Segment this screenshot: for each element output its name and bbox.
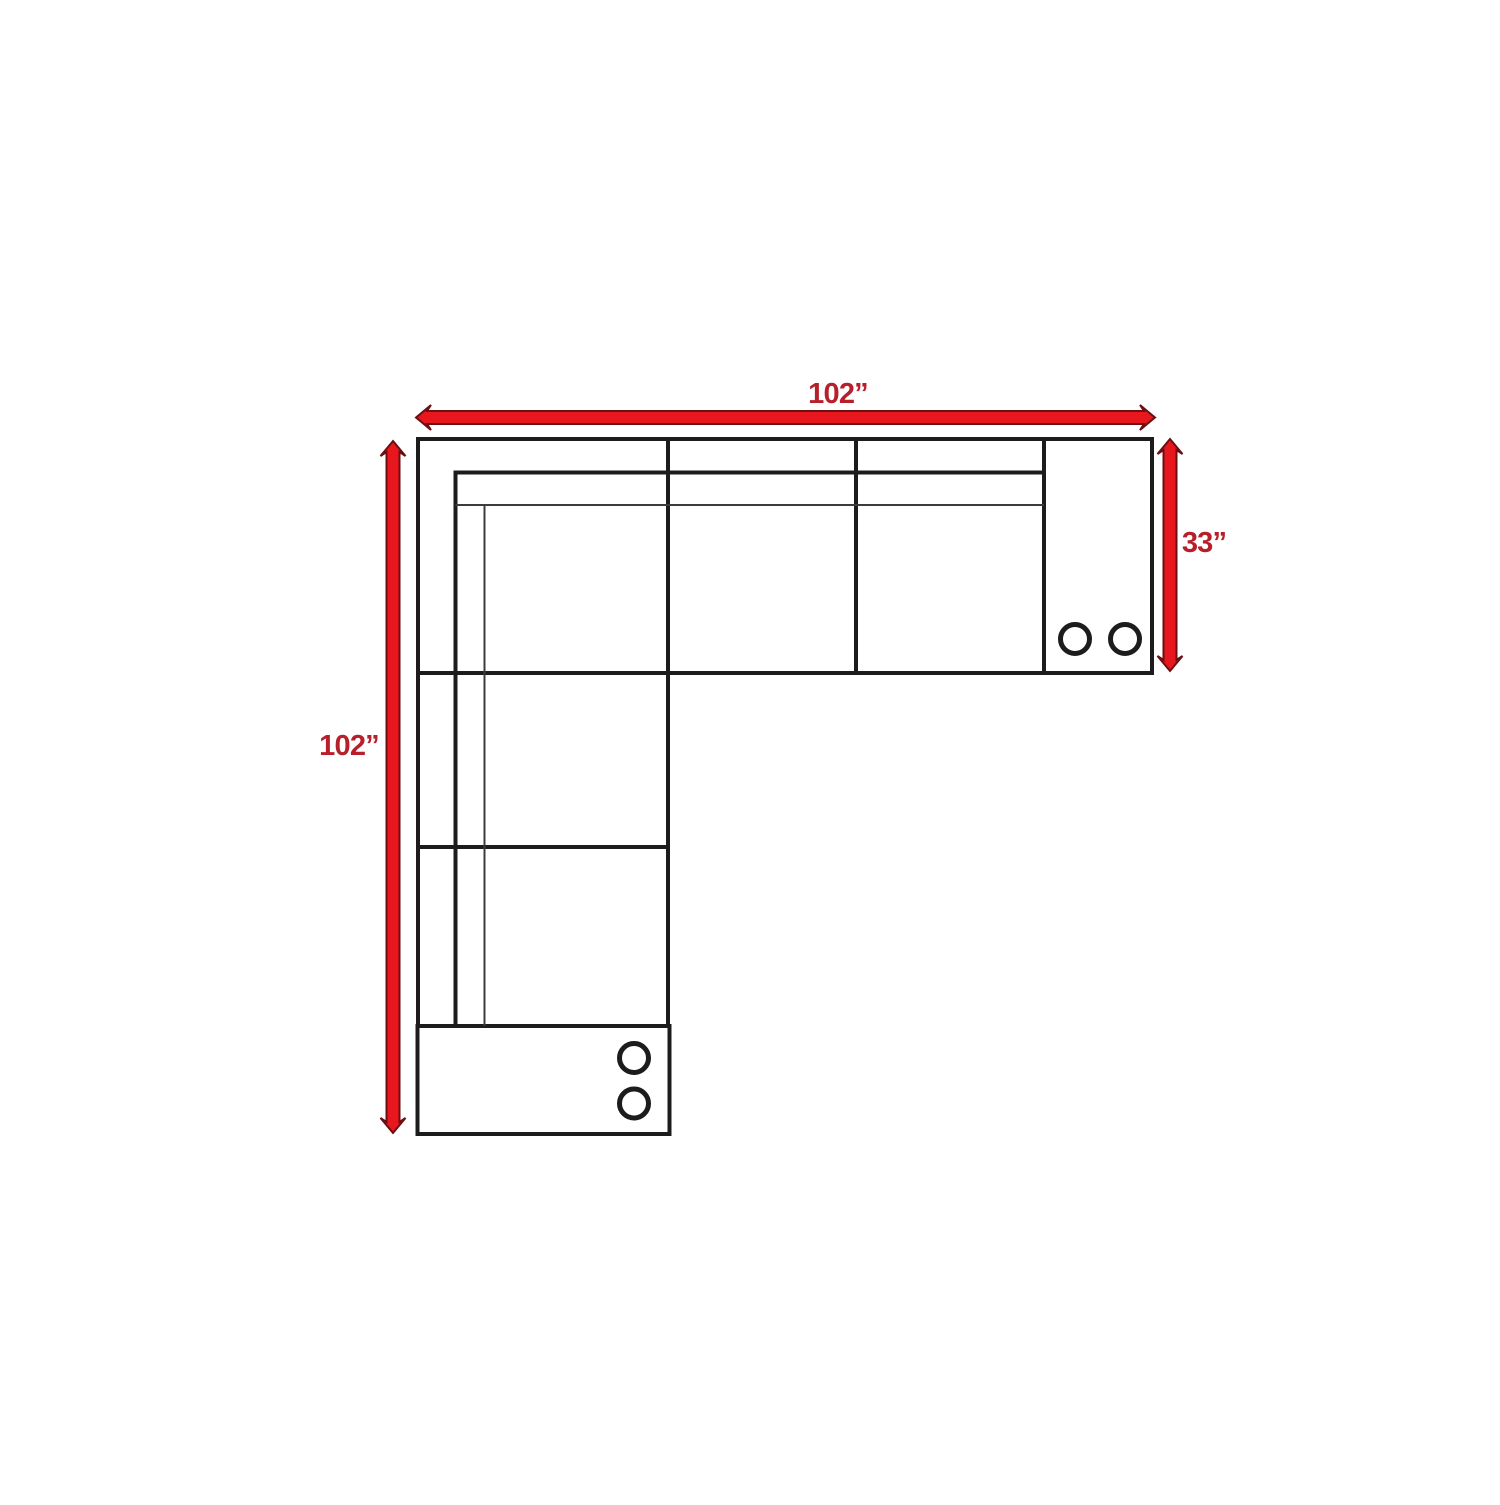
svg-text:102”: 102” bbox=[808, 378, 868, 410]
svg-text:102”: 102” bbox=[319, 730, 379, 762]
svg-text:33”: 33” bbox=[1182, 527, 1226, 559]
